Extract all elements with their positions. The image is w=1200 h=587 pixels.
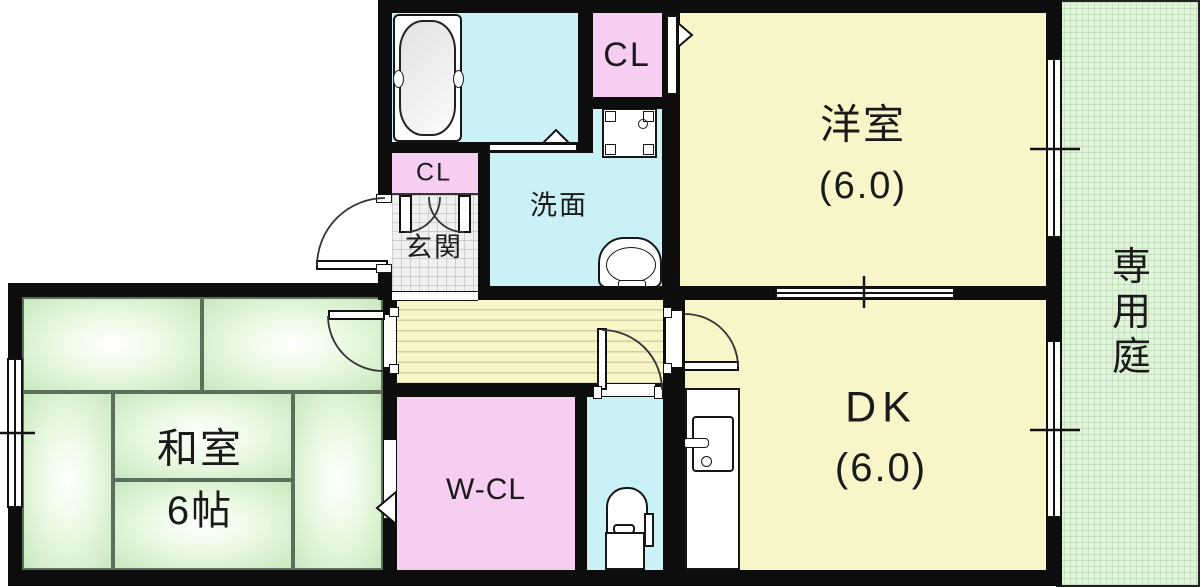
drain-hole [638,119,648,129]
toilet-side-panel [644,513,654,547]
western-room-size: (6.0) [819,167,907,205]
washroom-label: 洗面 [530,193,588,220]
wall [8,570,1062,586]
pan-corner [605,111,616,122]
entrance-label: 玄関 [405,235,463,262]
door-jamb [663,363,672,374]
door-jamb [389,364,399,374]
dk-size: (6.0) [835,448,927,488]
western-room-label: 洋室 [820,105,906,146]
closet-pass-opening [384,440,396,518]
dk-label: DK [845,387,917,430]
toilet-lid-handle [613,524,635,534]
japanese-room-size: 6帖 [167,491,233,531]
dk-door-opening [666,311,682,367]
door-jamb [654,386,663,399]
window [1046,340,1062,518]
japanese-room-door-opening [384,315,396,367]
hallway [392,300,663,383]
window [1046,58,1062,238]
wall [8,283,392,297]
wall [378,0,1062,13]
wall [575,397,587,570]
window [7,358,23,508]
wall [478,142,490,300]
tatami-mat [293,392,383,570]
western-room [680,13,1046,286]
wall [478,286,1062,300]
upper-closet-label: CL [603,38,650,72]
bathtub [393,14,462,142]
tatami-mat [22,392,113,570]
japanese-room-door-leaf [328,310,385,320]
wall [578,97,664,109]
sliding-partition [775,287,955,299]
dk-door-leaf [683,361,739,371]
bathroom-door-leaf [488,143,578,152]
sink-drain [701,456,712,467]
kitchen-counter [685,388,740,570]
upper-closet-door-leaf [666,15,678,95]
entrance-closet-door-leaf [399,195,412,233]
bathtub-grip [393,70,404,88]
japanese-room-label: 和室 [157,429,243,470]
entrance-door-opening [378,203,392,264]
entrance-door-arc [317,198,385,266]
walk-in-closet-label: W-CL [446,475,526,505]
door-jamb [376,194,392,203]
toilet-door-leaf [597,328,607,390]
wall [578,0,593,153]
entrance-closet-label: CL [416,161,452,186]
tatami-mat [22,297,202,392]
washing-machine-pan [602,108,657,158]
door-jamb [389,307,399,317]
pan-corner [643,144,654,155]
door-jamb [593,386,602,399]
floorplan: 専用庭 [0,0,1200,587]
door-jamb [376,264,392,273]
bathtub-grip [453,70,464,88]
toilet-tank [605,532,645,570]
entrance-closet-door-leaf [458,195,471,233]
basin-bowl [606,247,656,283]
pan-corner [605,144,616,155]
garden-label: 専用庭 [1109,246,1148,381]
bathtub-inner [399,20,456,136]
toilet-door-opening [601,384,655,396]
wash-basin [598,237,662,288]
door-jamb [663,307,672,318]
entrance-step [392,291,478,301]
kitchen-faucet [683,438,709,448]
